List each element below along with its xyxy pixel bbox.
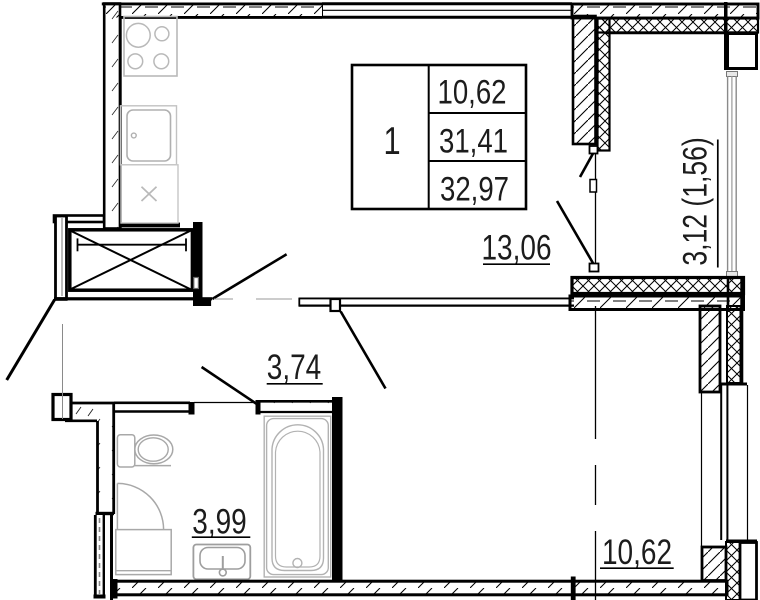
svg-text:13,06: 13,06 xyxy=(481,227,551,267)
svg-text:31,41: 31,41 xyxy=(439,122,508,161)
svg-text:3,74: 3,74 xyxy=(267,347,321,387)
svg-text:3,99: 3,99 xyxy=(192,501,246,541)
svg-text:10,62: 10,62 xyxy=(437,73,506,112)
svg-text:3,12 (1,56): 3,12 (1,56) xyxy=(675,137,714,265)
svg-text:1: 1 xyxy=(383,120,400,163)
svg-text:10,62: 10,62 xyxy=(602,532,672,572)
svg-text:32,97: 32,97 xyxy=(440,170,509,209)
